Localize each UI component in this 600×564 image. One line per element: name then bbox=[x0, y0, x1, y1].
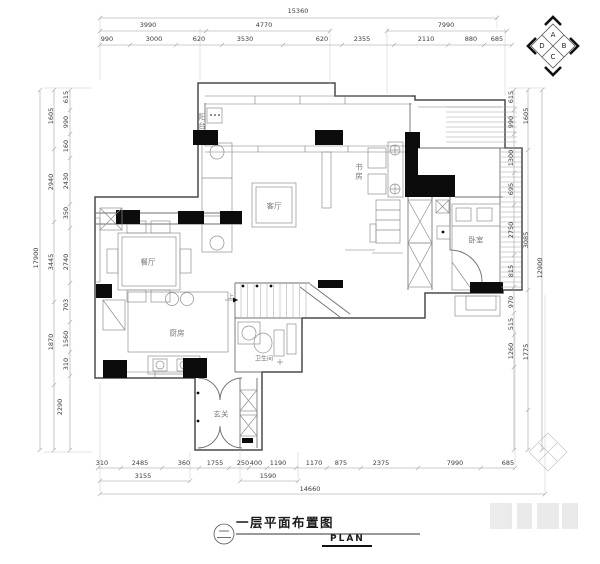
dim-label: 695 bbox=[507, 183, 515, 195]
dim-label: 12900 bbox=[536, 258, 544, 279]
stair-break-line bbox=[300, 284, 350, 317]
room-label: 客厅 bbox=[267, 201, 282, 212]
dim-label: 1260 bbox=[507, 343, 515, 360]
room-label: 卫生间 bbox=[255, 354, 273, 363]
tv-cabinet bbox=[322, 152, 331, 208]
compass-letter: A bbox=[551, 31, 556, 39]
dim-label: 3990 bbox=[140, 21, 157, 29]
dim-label: 990 bbox=[507, 116, 515, 128]
armchair bbox=[368, 148, 386, 168]
dim-label: 360 bbox=[178, 459, 190, 467]
toilet bbox=[254, 333, 272, 353]
dining-chair bbox=[151, 221, 170, 233]
dim-label: 1870 bbox=[47, 334, 55, 351]
dim-label: 2375 bbox=[373, 459, 390, 467]
dim-label: 1300 bbox=[507, 150, 515, 167]
dim-label: 2940 bbox=[47, 174, 55, 191]
dim-label: 350 bbox=[62, 207, 70, 219]
dim-label: 703 bbox=[62, 299, 70, 311]
dim-label: 815 bbox=[507, 265, 515, 277]
bed bbox=[452, 204, 500, 290]
bench bbox=[466, 296, 496, 310]
dim-label: 1170 bbox=[306, 459, 323, 467]
floor-plan-drawing bbox=[0, 0, 600, 564]
dim-label: 2750 bbox=[507, 222, 515, 239]
dim-label: 990 bbox=[101, 35, 113, 43]
pillow bbox=[477, 208, 492, 221]
dim-label: 990 bbox=[62, 116, 70, 128]
structural-columns bbox=[96, 114, 503, 443]
platform bbox=[455, 296, 500, 316]
sofa bbox=[202, 143, 232, 252]
dim-label: 2355 bbox=[354, 35, 371, 43]
floor-plan-page: 1536039904770799099030006203530620235521… bbox=[0, 0, 600, 564]
sink bbox=[166, 293, 179, 306]
armchair bbox=[368, 174, 386, 194]
dim-label: 2290 bbox=[56, 399, 64, 416]
dim-label: 1590 bbox=[260, 472, 277, 480]
dim-label: 2740 bbox=[62, 254, 70, 271]
dim-label: 615 bbox=[507, 91, 515, 103]
dim-label: 875 bbox=[335, 459, 347, 467]
dining-chair bbox=[107, 249, 118, 273]
dim-label: 1560 bbox=[62, 331, 70, 348]
interior-walls bbox=[95, 103, 522, 448]
dim-label: 620 bbox=[316, 35, 328, 43]
room-label: 阳台 bbox=[198, 114, 207, 131]
dresser bbox=[376, 200, 400, 243]
room-label: 餐厅 bbox=[141, 257, 156, 268]
dim-label: 880 bbox=[465, 35, 477, 43]
dim-label: 3085 bbox=[522, 232, 530, 249]
dining-chair bbox=[180, 249, 191, 273]
dim-label: 515 bbox=[507, 318, 515, 330]
room-label: 卧室 bbox=[469, 235, 484, 246]
dim-label: 3000 bbox=[146, 35, 163, 43]
drawing-subtitle: PLAN bbox=[330, 534, 365, 544]
dim-label: 15360 bbox=[288, 7, 309, 15]
room-label: 书房 bbox=[355, 164, 364, 181]
dim-label: 3155 bbox=[135, 472, 152, 480]
compass-rose bbox=[528, 17, 578, 75]
door-arcs bbox=[198, 250, 482, 448]
room-label: 厨房 bbox=[170, 328, 185, 339]
dim-label: 685 bbox=[502, 459, 514, 467]
room-label: 玄关 bbox=[214, 409, 229, 420]
faint-compass bbox=[529, 433, 567, 471]
dim-label: 17900 bbox=[32, 248, 40, 269]
wash-basin bbox=[238, 322, 260, 344]
room-label: 上 bbox=[228, 292, 234, 301]
dim-label: 3445 bbox=[47, 254, 55, 271]
dim-label: 7990 bbox=[438, 21, 455, 29]
compass-letter: C bbox=[551, 53, 556, 61]
dim-label: 7990 bbox=[447, 459, 464, 467]
dim-label: 1605 bbox=[522, 108, 530, 125]
extension-lines bbox=[44, 15, 546, 492]
compass-letter: D bbox=[539, 42, 544, 50]
dim-label: 14660 bbox=[300, 485, 321, 493]
dim-label: 1605 bbox=[47, 108, 55, 125]
drawing-title: 一层平面布置图 bbox=[236, 512, 334, 531]
dim-label: 615 bbox=[62, 91, 70, 103]
dim-label: 685 bbox=[491, 35, 503, 43]
dim-label: 3530 bbox=[237, 35, 254, 43]
dim-label: 310 bbox=[96, 459, 108, 467]
dim-label: 2430 bbox=[62, 173, 70, 190]
dim-label: 1190 bbox=[270, 459, 287, 467]
dim-label: 2110 bbox=[418, 35, 435, 43]
dim-label: 400 bbox=[250, 459, 262, 467]
pillow bbox=[456, 208, 471, 221]
watermark bbox=[490, 503, 578, 529]
dim-label: 970 bbox=[507, 296, 515, 308]
dim-label: 4770 bbox=[256, 21, 273, 29]
compass-letter: B bbox=[562, 42, 567, 50]
dim-label: 2485 bbox=[132, 459, 149, 467]
outer-walls bbox=[95, 83, 522, 450]
burner bbox=[156, 361, 164, 369]
sink bbox=[181, 293, 194, 306]
dim-label: 310 bbox=[62, 358, 70, 370]
dim-label: 250 bbox=[237, 459, 249, 467]
detail-number-circle bbox=[214, 524, 234, 544]
dim-label: 620 bbox=[193, 35, 205, 43]
dim-label: 160 bbox=[62, 140, 70, 152]
toilet-tank bbox=[274, 330, 284, 356]
dim-label: 1775 bbox=[522, 344, 530, 361]
dim-label: 1755 bbox=[207, 459, 224, 467]
